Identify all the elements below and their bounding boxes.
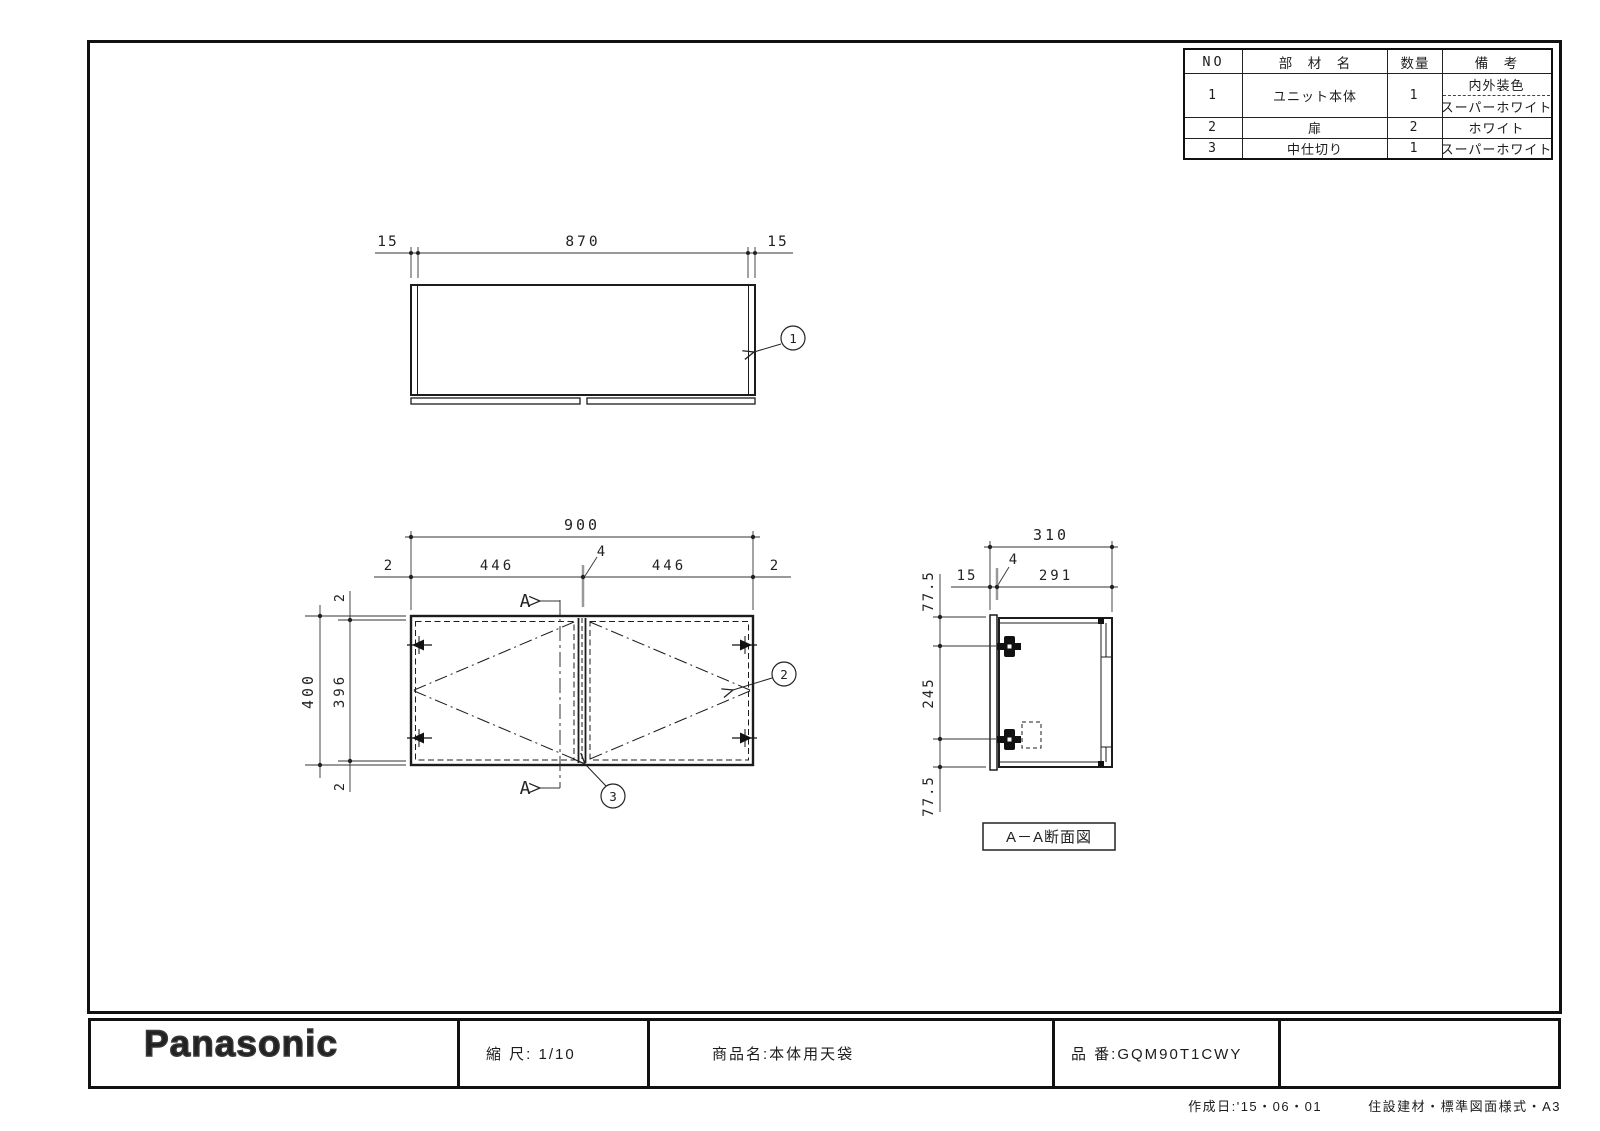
scale-cell: 縮 尺: 1/10 bbox=[457, 1021, 647, 1086]
table-row: 3 中仕切り 1 スーパーホワイト bbox=[1185, 138, 1551, 159]
dim-front-bottom-gap: 2 bbox=[332, 783, 348, 791]
brand-logo: Panasonic bbox=[91, 1021, 457, 1086]
row1-name: ユニット本体 bbox=[1242, 74, 1387, 117]
dim-side-depth: 310 bbox=[1033, 526, 1069, 544]
header-remarks: 備 考 bbox=[1442, 50, 1550, 73]
empty-cell bbox=[1278, 1021, 1558, 1086]
dim-side-divider: 4 bbox=[1009, 552, 1019, 568]
dim-front-edge-left: 2 bbox=[384, 558, 394, 574]
front-view-dimensions bbox=[305, 531, 791, 792]
dim-side-inner-depth: 291 bbox=[1039, 568, 1073, 584]
row2-qty: 2 bbox=[1387, 118, 1442, 138]
side-hinges bbox=[997, 636, 1021, 750]
product-name: 商品名:本体用天袋 bbox=[712, 1043, 854, 1064]
parts-table-header: NO 部 材 名 数量 備 考 bbox=[1185, 50, 1551, 73]
row1-remarks-line1: 内外装色 bbox=[1443, 74, 1550, 95]
product-cell: 商品名:本体用天袋 bbox=[647, 1021, 1052, 1086]
front-view bbox=[411, 616, 753, 765]
cad-drawing: 15 870 15 1 bbox=[0, 0, 1600, 1131]
dim-front-height-inner: 396 bbox=[332, 674, 348, 708]
dim-side-mid: 245 bbox=[921, 677, 937, 708]
section-letter-bottom: A bbox=[520, 778, 531, 799]
balloon-2: 2 bbox=[733, 662, 796, 690]
dim-front-total: 900 bbox=[564, 516, 600, 534]
dim-top-left: 15 bbox=[377, 234, 398, 250]
row2-name: 扉 bbox=[1242, 118, 1387, 138]
balloon-3: 3 bbox=[585, 764, 625, 808]
dim-front-door-left: 446 bbox=[480, 558, 514, 574]
created-date: 作成日:'15・06・01 bbox=[1188, 1096, 1322, 1115]
drawing-sheet: 15 870 15 1 bbox=[0, 0, 1600, 1131]
header-name: 部 材 名 bbox=[1242, 50, 1387, 73]
row3-qty: 1 bbox=[1387, 139, 1442, 159]
panasonic-logo: Panasonic bbox=[91, 1021, 391, 1069]
section-label: A－A断面図 bbox=[983, 823, 1115, 850]
row1-qty: 1 bbox=[1387, 74, 1442, 117]
balloon-3-number: 3 bbox=[609, 789, 617, 804]
header-no: NO bbox=[1185, 50, 1242, 73]
divider-hidden-outline bbox=[1022, 722, 1041, 748]
dim-front-top-gap: 2 bbox=[332, 594, 348, 602]
dim-front-door-right: 446 bbox=[652, 558, 686, 574]
format-standard: 住設建材・標準図面様式・A3 bbox=[1368, 1096, 1561, 1115]
part-number-cell: 品 番:GQM90T1CWY bbox=[1052, 1021, 1278, 1086]
table-row: 1 ユニット本体 1 内外装色 スーパーホワイト bbox=[1185, 73, 1551, 117]
section-letter-top: A bbox=[520, 591, 531, 612]
dim-side-bottom: 77.5 bbox=[921, 775, 937, 817]
row3-remarks: スーパーホワイト bbox=[1442, 139, 1550, 159]
part-number: 品 番:GQM90T1CWY bbox=[1071, 1043, 1242, 1064]
row1-remarks-line2: スーパーホワイト bbox=[1443, 95, 1550, 117]
balloon-2-number: 2 bbox=[780, 667, 788, 682]
row3-no: 3 bbox=[1185, 139, 1242, 159]
table-row: 2 扉 2 ホワイト bbox=[1185, 117, 1551, 138]
dim-front-divider: 4 bbox=[597, 544, 607, 560]
sheet-border bbox=[89, 42, 1561, 1013]
section-label-text: A－A断面図 bbox=[1006, 829, 1092, 846]
balloon-1: 1 bbox=[754, 326, 805, 352]
header-qty: 数量 bbox=[1387, 50, 1442, 73]
row2-no: 2 bbox=[1185, 118, 1242, 138]
top-view bbox=[411, 285, 755, 404]
dim-front-edge-right: 2 bbox=[770, 558, 780, 574]
footer-note: 作成日:'15・06・01 住設建材・標準図面様式・A3 bbox=[1188, 1096, 1561, 1115]
dim-top-right: 15 bbox=[767, 234, 788, 250]
scale-label: 縮 尺: 1/10 bbox=[486, 1043, 576, 1064]
row3-name: 中仕切り bbox=[1242, 139, 1387, 159]
dim-side-door-thickness: 15 bbox=[957, 568, 978, 584]
dim-front-height: 400 bbox=[299, 673, 317, 709]
brand-logo-text: Panasonic bbox=[144, 1023, 338, 1064]
title-block: Panasonic 縮 尺: 1/10 商品名:本体用天袋 品 番:GQM90T… bbox=[88, 1018, 1561, 1089]
top-view-dimension bbox=[375, 247, 793, 278]
dim-side-top: 77.5 bbox=[921, 570, 937, 612]
balloon-1-number: 1 bbox=[789, 331, 797, 346]
row1-no: 1 bbox=[1185, 74, 1242, 117]
dim-top-center: 870 bbox=[565, 234, 600, 250]
parts-table: NO 部 材 名 数量 備 考 1 ユニット本体 1 内外装色 スーパーホワイト… bbox=[1183, 48, 1553, 160]
row2-remarks: ホワイト bbox=[1442, 118, 1550, 138]
row1-remarks: 内外装色 スーパーホワイト bbox=[1442, 74, 1550, 117]
